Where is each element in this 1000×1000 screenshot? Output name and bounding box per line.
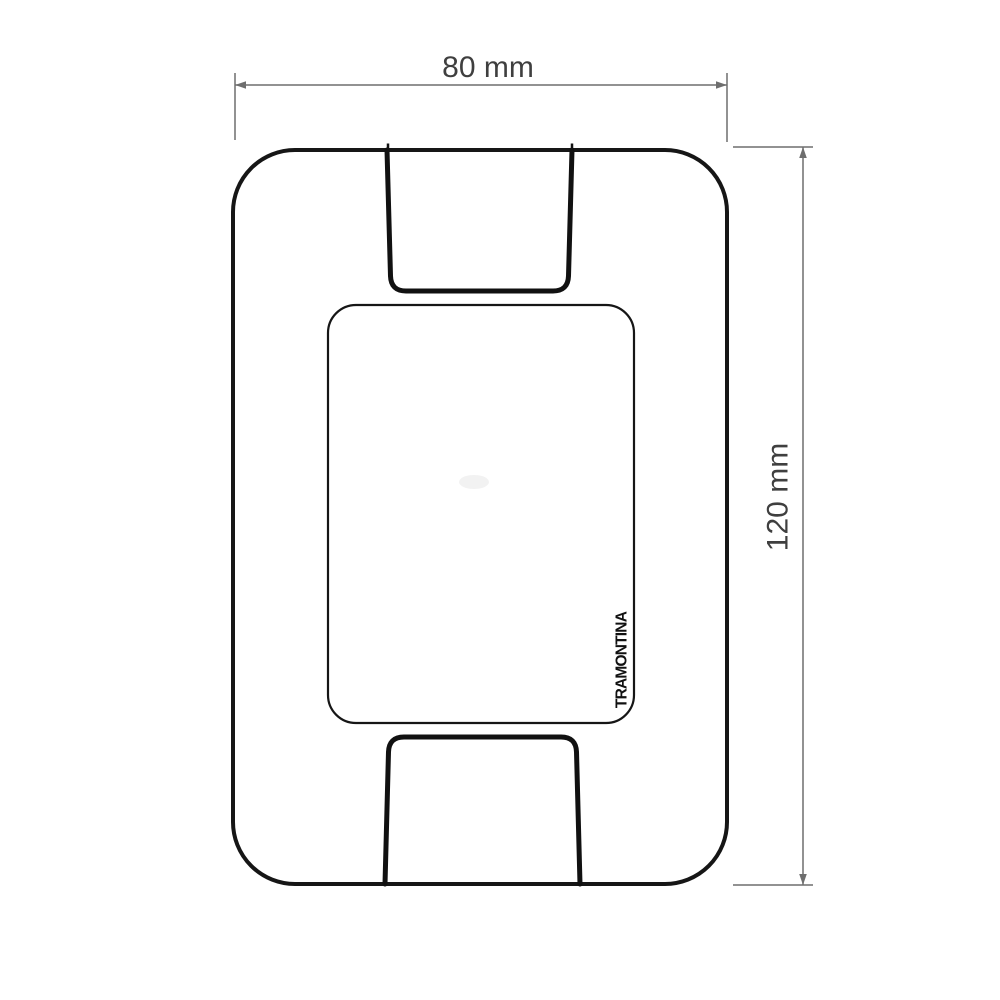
faint-center-smudge — [459, 475, 489, 489]
plate-drawing: TRAMONTINA — [233, 144, 727, 885]
center-opening — [328, 305, 634, 723]
plate-outline — [233, 150, 727, 884]
height-arrow-bottom — [799, 874, 807, 885]
brand-label: TRAMONTINA — [614, 611, 631, 708]
width-arrow-right — [716, 81, 727, 89]
width-dimension: 80 mm — [235, 51, 727, 142]
top-mounting-cutout — [387, 150, 572, 291]
height-dimension-label: 120 mm — [762, 443, 795, 551]
technical-drawing-canvas: TRAMONTINA 80 mm 120 m — [0, 0, 1000, 1000]
wall-plate-technical-drawing: TRAMONTINA 80 mm 120 m — [0, 0, 1000, 1000]
height-arrow-top — [799, 147, 807, 158]
height-dimension: 120 mm — [733, 147, 813, 885]
width-arrow-left — [235, 81, 246, 89]
width-dimension-label: 80 mm — [442, 51, 534, 84]
bottom-mounting-cutout — [385, 737, 580, 884]
